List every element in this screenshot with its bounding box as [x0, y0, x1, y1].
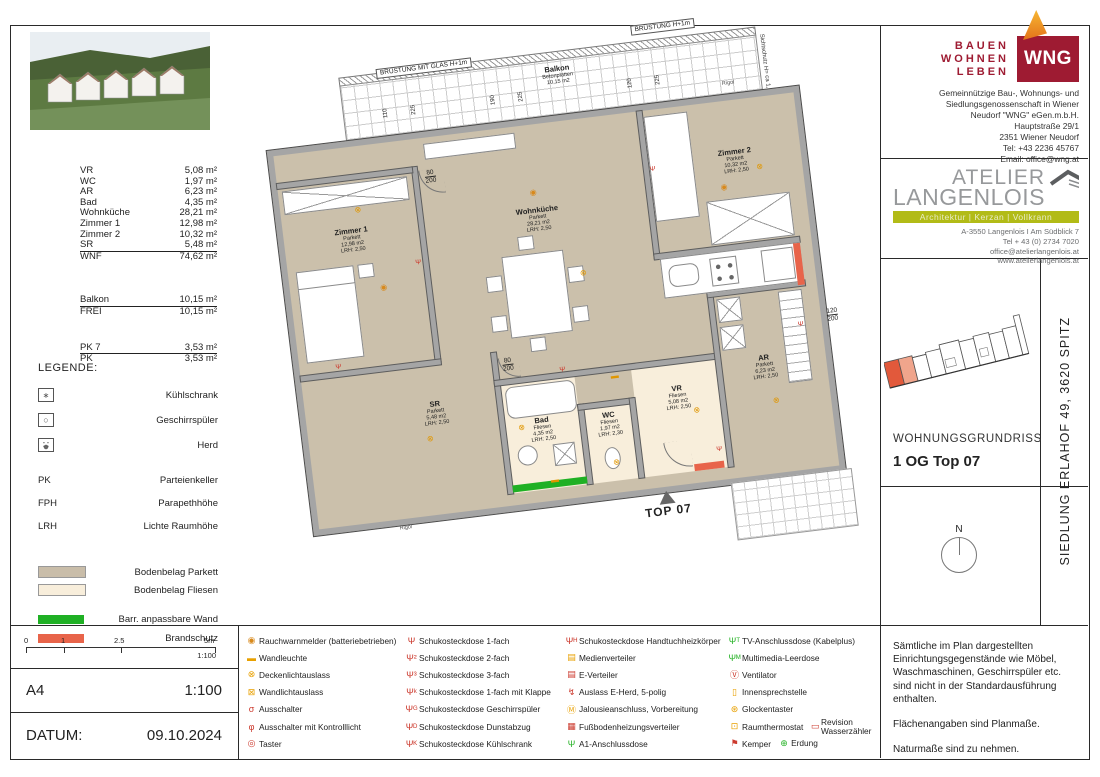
washing-machine	[716, 296, 743, 323]
room-label-zimmer1: Zimmer 1 Parkett 12,98 m2 LRH: 2,50	[334, 225, 370, 255]
room-name: Balkon	[80, 295, 109, 306]
dimension: 190	[490, 95, 497, 106]
address-line: Tel: +43 2236 45767	[893, 143, 1079, 154]
ceiling-light-symbol: ⊗	[613, 458, 621, 467]
floor-swatch	[38, 584, 86, 596]
sideboard	[423, 133, 516, 160]
electrical-symbol-icon: Ψᴳ	[404, 704, 419, 714]
symbol-legend-item: ▬ Wandleuchte	[244, 649, 402, 666]
symbol-label: Medienverteiler	[579, 653, 636, 663]
floor-swatch	[38, 566, 86, 578]
legend-abbr: PK	[38, 475, 51, 486]
wng-logo-text: WNG	[1024, 48, 1072, 70]
room-label-sr: SR Parkett 5,48 m2 LRH: 2,50	[422, 399, 450, 428]
room-area: 3,53 m²	[185, 343, 217, 354]
location-text: SIEDLUNG ERLAHOF 49, 3620 SPITZ	[1058, 317, 1072, 565]
table-row: Zimmer 1 12,98 m²	[80, 219, 217, 230]
electrical-symbol-icon: Ψᵏ	[404, 687, 419, 697]
address-line: A-3550 Langenlois I Am Südblick 7	[893, 227, 1079, 237]
wng-logo: WNG	[1017, 36, 1079, 82]
electrical-symbol-icon: Ψ	[404, 636, 419, 646]
ceiling-light-symbol: ⊗	[580, 269, 588, 278]
exterior-dimension: 120 200	[826, 307, 839, 323]
electrical-symbol-icon: ↯	[564, 687, 579, 698]
compass-icon	[941, 537, 977, 573]
scale-ratio: 1:100	[197, 651, 216, 660]
legend-item: Kühlschrank	[38, 388, 218, 402]
symbol-legend-item: ⚑ Kemper ⊕ Erdung	[727, 735, 877, 752]
symbol-label: Schukosteckdose 1-fach	[419, 636, 509, 646]
symbol-legend-item: Ψᴳ Schukosteckdose Geschirrspüler	[404, 701, 562, 718]
plan-notes: Sämtliche im Plan dargestellten Einricht…	[893, 640, 1079, 768]
ceiling-light-symbol: ⊗	[427, 435, 435, 444]
dimension: 225	[410, 104, 417, 115]
electrical-symbol-icon: ⊗	[244, 669, 259, 680]
symbol-label: Deckenlichtauslass	[259, 670, 330, 680]
socket-symbol: Ψ	[716, 446, 723, 454]
unit-label: TOP 07	[633, 499, 704, 521]
electrical-symbol-icon: ▤	[564, 652, 579, 663]
room-area: 10,15 m²	[180, 307, 218, 318]
wardrobe	[706, 192, 795, 246]
symbol-label: Erdung	[791, 739, 818, 748]
electrical-symbol-icon: Ψᴷ	[404, 739, 419, 749]
electrical-symbol-icon: ▤	[564, 669, 579, 680]
symbol-legend-item: ⊗ Deckenlichtauslass	[244, 666, 402, 683]
legend-label: Parteienkeller	[160, 475, 218, 486]
electrical-symbol-icon: ▯	[727, 687, 742, 698]
wng-slogan-line: WOHNEN	[941, 53, 1009, 66]
stove	[709, 256, 739, 287]
legend-label: Barr. anpassbare Wand	[119, 614, 218, 625]
electrical-symbol-icon: Ⓥ	[727, 668, 742, 681]
symbol-label: Schukosteckdose Geschirrspüler	[419, 704, 540, 714]
smoke-detector-symbol: ◉	[720, 183, 728, 192]
room-name: WNF	[80, 252, 102, 263]
room-name: VR	[80, 166, 93, 177]
socket-symbol: Ψ	[559, 366, 566, 374]
symbol-label: Schukosteckdose Kühlschrank	[419, 739, 532, 749]
scale-tick-label: 1	[61, 636, 65, 645]
electrical-symbol-icon: ⊠	[244, 687, 259, 698]
architect-block: ATELIER LANGENLOIS Architektur | Kerzan …	[893, 168, 1079, 266]
door-dimension: 80 200	[424, 169, 437, 185]
chair	[572, 305, 590, 323]
unit-title: 1 OG Top 07	[893, 453, 980, 470]
legend-label: Bodenbelag Fliesen	[134, 585, 218, 596]
symbol-legend-item: Ψᴴ Schukosteckdose Handtuchheizkörper	[564, 632, 724, 649]
electrical-symbol-icon: φ	[244, 722, 259, 732]
drawing-scale: 1:100	[184, 682, 222, 699]
socket-symbol: Ψ	[649, 166, 656, 174]
symbol-label: Jalousieanschluss, Vorbereitung	[579, 704, 698, 714]
legend-item: Bodenbelag Fliesen	[38, 584, 218, 596]
legend-item: PK Parteienkeller	[38, 475, 218, 486]
electrical-symbol-icon: ▦	[564, 721, 579, 732]
electrical-symbol-icon: Ψᴴ	[564, 636, 579, 646]
electrical-symbol-icon: Ψᴹ	[727, 653, 742, 663]
scale-tick-label: 0	[24, 636, 28, 645]
plan-sheet: VR 5,08 m² WC 1,97 m² AR 6,23 m² Bad 4,3…	[0, 0, 1100, 777]
room-name: Zimmer 1	[80, 219, 120, 230]
electrical-symbol-icon: ⊕	[777, 738, 791, 749]
legend-label: Parapethhöhe	[158, 498, 218, 509]
legend-item: Barr. anpassbare Wand	[38, 614, 218, 625]
room-label-wohnkueche: Wohnküche Parkett 28,21 m2 LRH: 2,50	[515, 204, 560, 236]
wng-slogan: BAUENWOHNENLEBEN	[941, 40, 1009, 79]
legend-label: Herd	[197, 440, 218, 451]
symbol-label: A1-Anschlussdose	[579, 739, 648, 749]
symbol-legend-item: ▤ E-Verteiler	[564, 666, 724, 683]
room-name: FREI	[80, 307, 102, 318]
symbol-label: Wandlichtauslass	[259, 687, 323, 697]
address-line: Hauptstraße 29/1	[893, 121, 1079, 132]
nightstand	[357, 263, 375, 279]
dryer	[720, 324, 747, 351]
symbol-label: Multimedia-Leerdose	[742, 653, 819, 663]
architect-banner: Architektur | Kerzan | Vollkrann	[893, 211, 1079, 223]
title-column-divider	[880, 25, 881, 758]
legend: LEGENDE: Kühlschrank Geschirrspüler Herd	[38, 362, 218, 652]
location-strip: SIEDLUNG ERLAHOF 49, 3620 SPITZ	[1041, 258, 1089, 625]
electrical-symbol-icon: ⚑	[727, 738, 742, 749]
chair	[529, 336, 547, 352]
electrical-symbol-icon: ⊛	[727, 704, 742, 715]
appliance-icon	[38, 388, 54, 402]
symbol-label: Auslass E-Herd, 5-polig	[579, 687, 666, 697]
key-site-plan	[884, 292, 1036, 417]
ceiling-light-symbol: ⊗	[693, 406, 701, 415]
ceiling-light-symbol: ⊗	[756, 163, 764, 172]
room-area: 5,48 m²	[185, 240, 217, 251]
smoke-detector-symbol: ◉	[380, 283, 388, 292]
legend-title: LEGENDE:	[38, 362, 218, 374]
room-label-ar: AR Parkett 6,23 m2 LRH: 2,50	[751, 352, 779, 381]
legend-item: FPH Parapethhöhe	[38, 498, 218, 509]
note-paragraph: Flächenangaben sind Planmaße.	[893, 718, 1079, 731]
symbol-legend-item: Ψ³ Schukosteckdose 3-fach	[404, 666, 562, 683]
symbol-legend-item: Ψᵏ Schukosteckdose 1-fach mit Klappe	[404, 684, 562, 701]
roof-icon	[1049, 168, 1079, 192]
socket-symbol: Ψ	[335, 364, 342, 372]
scale-bar: 0 1 2.5 5m 1:100	[10, 625, 238, 668]
symbol-legend-item: Ψᴷ Schukosteckdose Kühlschrank	[404, 735, 562, 752]
ruler-line: 0 1 2.5 5m	[26, 647, 216, 648]
fridge	[761, 247, 797, 283]
symbol-legend-item: φ Ausschalter mit Kontrolllicht	[244, 718, 402, 735]
socket-symbol: Ψ	[415, 259, 422, 267]
color-bar	[38, 615, 84, 624]
symbol-label: Wandleuchte	[259, 653, 307, 663]
note-paragraph: Sämtliche im Plan dargestellten Einricht…	[893, 640, 1079, 706]
symbol-legend-item: ⊠ Wandlichtauslass	[244, 684, 402, 701]
wng-slogan-line: BAUEN	[941, 40, 1009, 53]
shelf	[778, 289, 813, 383]
symbol-legend-item: Ⓥ Ventilator	[727, 666, 877, 683]
wall	[300, 359, 441, 381]
room-label-bad: Bad Fliesen 4,35 m2 LRH: 2,50	[529, 415, 557, 444]
symbol-legend-item: ◉ Rauchwarnmelder (batteriebetrieben)	[244, 632, 402, 649]
address-line: office@atelierlangenlois.at	[893, 247, 1079, 257]
dimension: 110	[382, 108, 389, 118]
symbol-label: Taster	[259, 739, 282, 749]
areas-table: VR 5,08 m² WC 1,97 m² AR 6,23 m² Bad 4,3…	[80, 166, 217, 365]
note-paragraph: Naturmaße sind zu nehmen.	[893, 743, 1079, 756]
symbol-label: Fußbodenheizungsverteiler	[579, 722, 680, 732]
symbol-label: Rauchwarnmelder (batteriebetrieben)	[259, 636, 396, 646]
room-area: 10,15 m²	[180, 295, 218, 306]
room-label-vr: VR Fliesen 5,08 m2 LRH: 2,50	[664, 383, 692, 412]
dining-table	[501, 250, 573, 339]
chair	[517, 235, 535, 251]
smoke-detector-symbol: ◉	[529, 188, 537, 197]
electrical-symbol-icon: Ψ³	[404, 670, 419, 680]
floor-plan: BRÜSTUNG MIT GLAS H+1m BRÜSTUNG H+1m Sic…	[228, 27, 868, 624]
paper-format: A4	[26, 682, 44, 699]
symbol-legend-item: ◎ Taster	[244, 735, 402, 752]
wng-slogan-line: LEBEN	[941, 66, 1009, 79]
site-rendering-image	[30, 32, 210, 130]
table-row: WNF 74,62 m²	[80, 252, 217, 263]
symbol-legend-item: Ψ A1-Anschlussdose	[564, 735, 724, 752]
apartment-outline: Wohnküche Parkett 28,21 m2 LRH: 2,50 Zim…	[267, 86, 846, 536]
date-label: DATUM:	[26, 727, 82, 744]
symbol-label: Glockentaster	[742, 704, 793, 714]
ceiling-light-symbol: ⊗	[518, 424, 526, 433]
symbol-label: Schukosteckdose 3-fach	[419, 670, 509, 680]
wng-address: Gemeinnützige Bau-, Wohnungs- undSiedlun…	[893, 88, 1079, 165]
legend-abbr: LRH	[38, 521, 57, 532]
address-line: Tel + 43 (0) 2734 7020	[893, 237, 1079, 247]
electrical-symbol-icon: Ψᵀ	[727, 636, 742, 646]
symbol-legend-item: ⊡ Raumthermostat ▭ Revision Wasserzähler	[727, 718, 877, 735]
wall-light-symbol: ▬	[610, 372, 619, 381]
room-label-wc: WC Fliesen 1,97 m2 LRH: 2,30	[596, 410, 624, 439]
symbol-legend-item: Ⓜ Jalousieanschluss, Vorbereitung	[564, 701, 724, 718]
date-cell: DATUM: 09.10.2024	[10, 712, 238, 759]
legend-item: LRH Lichte Raumhöhe	[38, 521, 218, 532]
symbol-label: Schukosteckdose 2-fach	[419, 653, 509, 663]
room-area: 12,98 m²	[180, 219, 218, 230]
room-label-balkon: Balkon Betonplatten 10,15 m2	[541, 63, 574, 87]
symbol-label: Schukosteckdose 1-fach mit Klappe	[419, 687, 551, 697]
electrical-symbol-icon: ⊡	[727, 721, 742, 732]
symbol-label: TV-Anschlussdose (Kabelplus)	[742, 636, 855, 646]
north-arrow: N	[928, 524, 990, 573]
symbol-label: Raumthermostat	[742, 722, 803, 732]
electrical-symbol-icon: ◉	[244, 635, 259, 646]
dimension: 225	[654, 74, 661, 85]
legend-label: Lichte Raumhöhe	[144, 521, 218, 532]
address-line: Siedlungsgenossenschaft in Wiener	[893, 99, 1079, 110]
legend-abbr: FPH	[38, 498, 57, 509]
electrical-symbol-icon: Ψ	[564, 739, 579, 749]
appliance-icon	[38, 413, 54, 427]
symbol-label: Ventilator	[742, 670, 777, 680]
symbol-label: Ausschalter mit Kontrolllicht	[259, 722, 361, 732]
address-line: 2351 Wiener Neudorf	[893, 132, 1079, 143]
symbol-label: Innensprechstelle	[742, 687, 807, 697]
address-line: Email: office@wng.at	[893, 154, 1079, 165]
chair	[491, 315, 509, 333]
table-row: SR 5,48 m²	[80, 240, 217, 252]
address-line: Gemeinnützige Bau-, Wohnungs- und	[893, 88, 1079, 99]
electrical-symbol-icon: Ψᴰ	[404, 722, 419, 732]
symbol-legend-item: Ψᴰ Schukosteckdose Dunstabzug	[404, 718, 562, 735]
symbol-legend-item: ▯ Innensprechstelle	[727, 684, 877, 701]
symbol-legend-item: Ψᴹ Multimedia-Leerdose	[727, 649, 877, 666]
building-footprint	[884, 292, 1036, 412]
legend-label: Geschirrspüler	[156, 415, 218, 426]
north-letter: N	[928, 524, 990, 535]
symbol-label: Ausschalter	[259, 704, 302, 714]
chair	[486, 275, 504, 293]
legend-item: Herd	[38, 438, 218, 452]
room-name: PK 7	[80, 343, 101, 354]
project-photo	[30, 32, 210, 130]
ceiling-light-symbol: ⊗	[772, 396, 780, 405]
symbol-legend-item: ⊛ Glockentaster	[727, 701, 877, 718]
electrical-symbol-icon: ◎	[244, 738, 259, 749]
door-dimension: 80 200	[502, 357, 515, 373]
room-area: 74,62 m²	[180, 252, 218, 263]
symbol-legend-item: ▤ Medienverteiler	[564, 649, 724, 666]
scale-tick-label: 5m	[204, 636, 214, 645]
date-value: 09.10.2024	[147, 727, 222, 744]
scale-tick-label: 2.5	[114, 636, 124, 645]
plan-type-title: WOHNUNGSGRUNDRISS	[893, 433, 1042, 445]
symbol-label: Schukosteckdose Dunstabzug	[419, 722, 531, 732]
ceiling-light-symbol: ⊗	[354, 206, 362, 215]
legend-label: Kühlschrank	[166, 390, 218, 401]
electrical-symbol-icon: Ⓜ	[564, 703, 579, 716]
kitchen-sink	[668, 262, 700, 287]
electrical-symbol-icon: ▬	[244, 653, 259, 663]
symbol-legend-item: Ψᵀ TV-Anschlussdose (Kabelplus)	[727, 632, 877, 649]
electrical-symbol-icon: Ψ²	[404, 653, 419, 663]
appliance-icon	[38, 438, 54, 452]
symbol-legend-item: ↯ Auslass E-Herd, 5-polig	[564, 684, 724, 701]
electrical-symbol-icon: σ	[244, 704, 259, 714]
table-row: VR 5,08 m²	[80, 166, 217, 177]
symbol-legend-item: ▦ Fußbodenheizungsverteiler	[564, 718, 724, 735]
symbol-label: E-Verteiler	[579, 670, 618, 680]
dimension: 120	[627, 78, 634, 89]
format-cell: A4 1:100	[10, 668, 238, 712]
room-label-zimmer2: Zimmer 2 Parkett 10,32 m2 LRH: 2,50	[717, 146, 753, 176]
address-line: Neudorf "WNG" eGen.m.b.H.	[893, 110, 1079, 121]
legend-item: Bodenbelag Parkett	[38, 566, 218, 578]
room-name: SR	[80, 240, 93, 251]
socket-symbol: Ψ	[797, 321, 804, 329]
legend-label: Bodenbelag Parkett	[135, 567, 218, 578]
symbol-label: Kemper	[742, 739, 771, 749]
electrical-symbol-icon: ▭	[809, 721, 821, 732]
architect-name-line: LANGENLOIS	[893, 187, 1045, 208]
legend-item: Geschirrspüler	[38, 413, 218, 427]
table-row: FREI 10,15 m²	[80, 307, 217, 318]
symbol-legend-item: Ψ² Schukosteckdose 2-fach	[404, 649, 562, 666]
room-area: 5,08 m²	[185, 166, 217, 177]
symbol-legend-item: Ψ Schukosteckdose 1-fach	[404, 632, 562, 649]
electrical-symbol-legend: ◉ Rauchwarnmelder (batteriebetrieben) ▬ …	[238, 625, 880, 759]
symbol-label: Schukosteckdose Handtuchheizkörper	[579, 636, 721, 646]
wng-block: BAUENWOHNENLEBEN WNG Gemeinnützige Bau-,…	[893, 36, 1079, 165]
washing-machine	[553, 442, 578, 467]
symbol-legend-item: σ Ausschalter	[244, 701, 402, 718]
dimension: 225	[517, 91, 524, 102]
wall-light-symbol: ▬	[551, 476, 560, 485]
symbol-label: Revision Wasserzähler	[821, 718, 877, 735]
